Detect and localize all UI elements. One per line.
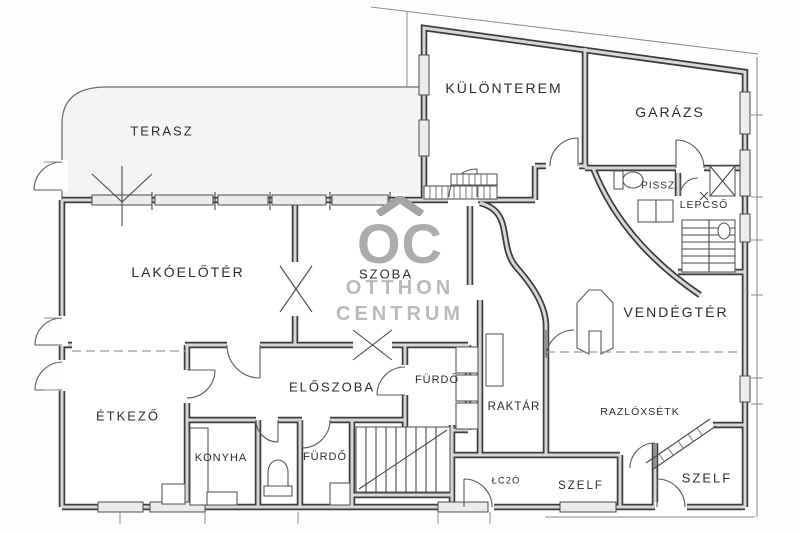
room-label-raktar: RAKTÁR [488, 401, 541, 413]
room-label-furdo-felso: FÜRDŐ [415, 374, 459, 386]
room-label-terasz: TERASZ [130, 124, 193, 139]
room-label-lakoeloter: LAKÓELŐTÉR [131, 264, 244, 280]
floor-plan: OC OTTHON CENTRUM TERASZ KÜLÖNTEREM GARÁ… [0, 0, 800, 533]
room-label-vendegter: VENDÉGTÉR [623, 304, 728, 320]
toilet-icon [614, 171, 643, 189]
room-label-konyha: KONYHA [195, 452, 247, 464]
room-label-garazs: GARÁZS [635, 104, 705, 120]
room-label-etkezo: ÉTKEZŐ [96, 409, 160, 424]
room-label-kulonterem: KÜLÖNTEREM [445, 80, 562, 96]
room-label-szelf-kozep: SZELF [558, 480, 604, 492]
room-label-szoba: SZOBA [359, 267, 413, 282]
room-label-razloxsetk: RAZLÓXSÉTK [600, 406, 679, 418]
room-label-lc2o: ŁC2Ó [492, 476, 521, 487]
room-label-eloszoba: ELŐSZOBA [289, 380, 375, 395]
room-label-szelf-jobb: SZELF [682, 471, 732, 486]
room-label-lepcso: LEPCSŐ [680, 199, 729, 211]
room-label-pissz: PISSZ. [641, 181, 679, 192]
terrace-outline [62, 87, 424, 200]
stairs-main [356, 427, 450, 492]
room-label-furdo-also: FÜRDŐ [303, 451, 347, 463]
